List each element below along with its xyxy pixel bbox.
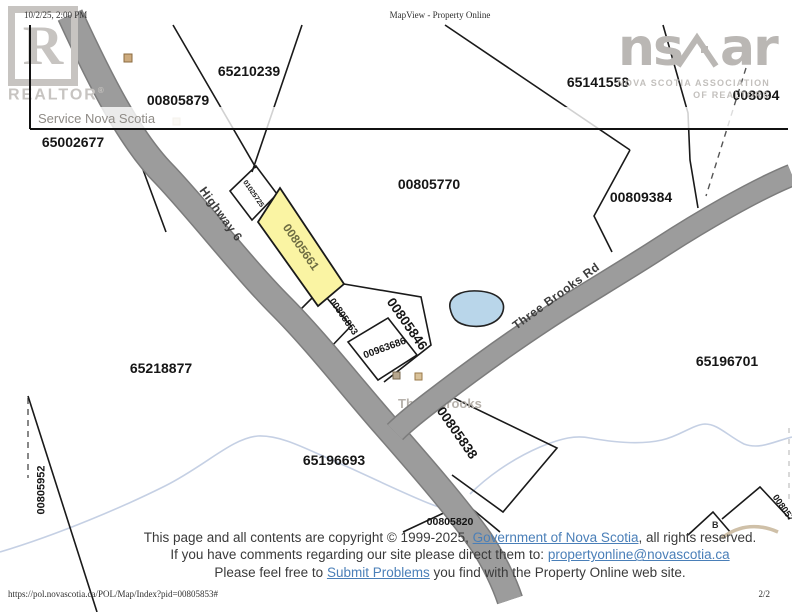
footer-line2: If you have comments regarding our site … bbox=[120, 546, 780, 563]
gov-ns-link[interactable]: Government of Nova Scotia bbox=[473, 530, 639, 545]
footer-line3: Please feel free to Submit Problems you … bbox=[120, 564, 780, 581]
print-timestamp: 10/2/25, 2:00 PM bbox=[24, 10, 87, 20]
footer-line1: This page and all contents are copyright… bbox=[120, 529, 780, 546]
page-indicator: 2/2 bbox=[758, 589, 770, 599]
frame-overlay bbox=[0, 0, 792, 612]
property-online-email-link[interactable]: propertyonline@novascotia.ca bbox=[548, 547, 730, 562]
submit-problems-link[interactable]: Submit Problems bbox=[327, 565, 430, 580]
print-title: MapView - Property Online bbox=[300, 10, 580, 20]
copyright-footer: This page and all contents are copyright… bbox=[120, 529, 780, 581]
mapview-page: Three Brooks 65210239 008058 bbox=[0, 0, 792, 612]
print-url: https://pol.novascotia.ca/POL/Map/Index?… bbox=[8, 589, 218, 599]
